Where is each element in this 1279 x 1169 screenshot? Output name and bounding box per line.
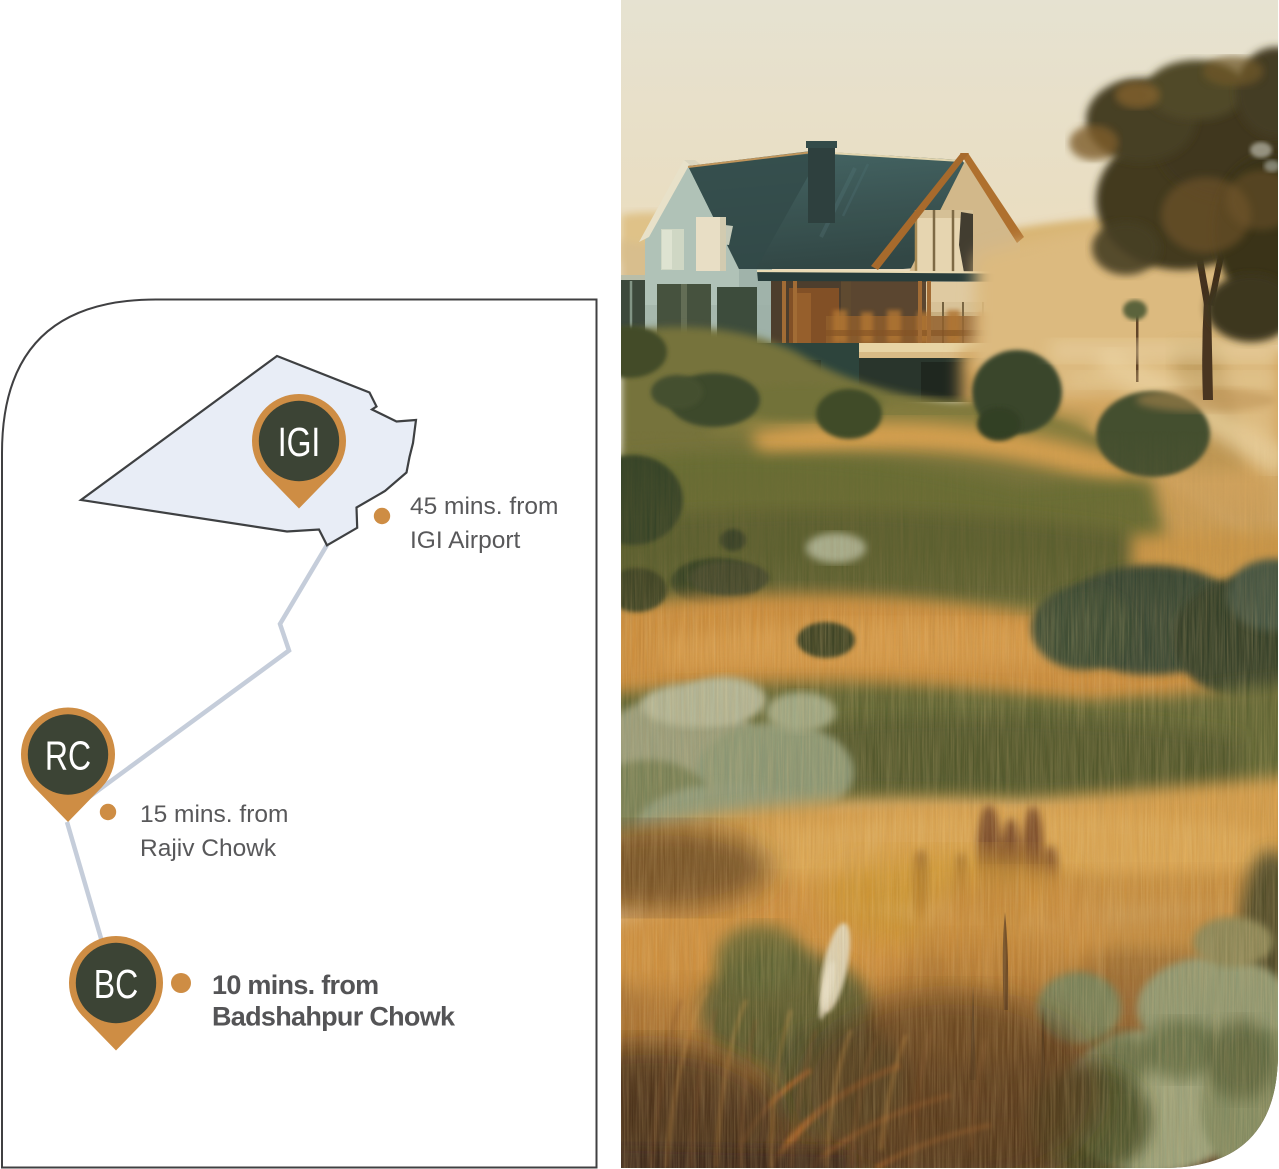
svg-text:10 mins. from: 10 mins. from — [212, 970, 378, 1000]
svg-text:Badshahpur Chowk: Badshahpur Chowk — [212, 1002, 456, 1032]
svg-text:45 mins. from: 45 mins. from — [410, 493, 558, 520]
svg-text:IGI: IGI — [278, 419, 321, 465]
svg-text:15 mins. from: 15 mins. from — [140, 801, 288, 828]
svg-text:BC: BC — [94, 961, 138, 1007]
svg-text:IGI Airport: IGI Airport — [410, 527, 520, 554]
svg-text:Rajiv Chowk: Rajiv Chowk — [140, 835, 277, 862]
svg-text:RC: RC — [45, 733, 91, 779]
